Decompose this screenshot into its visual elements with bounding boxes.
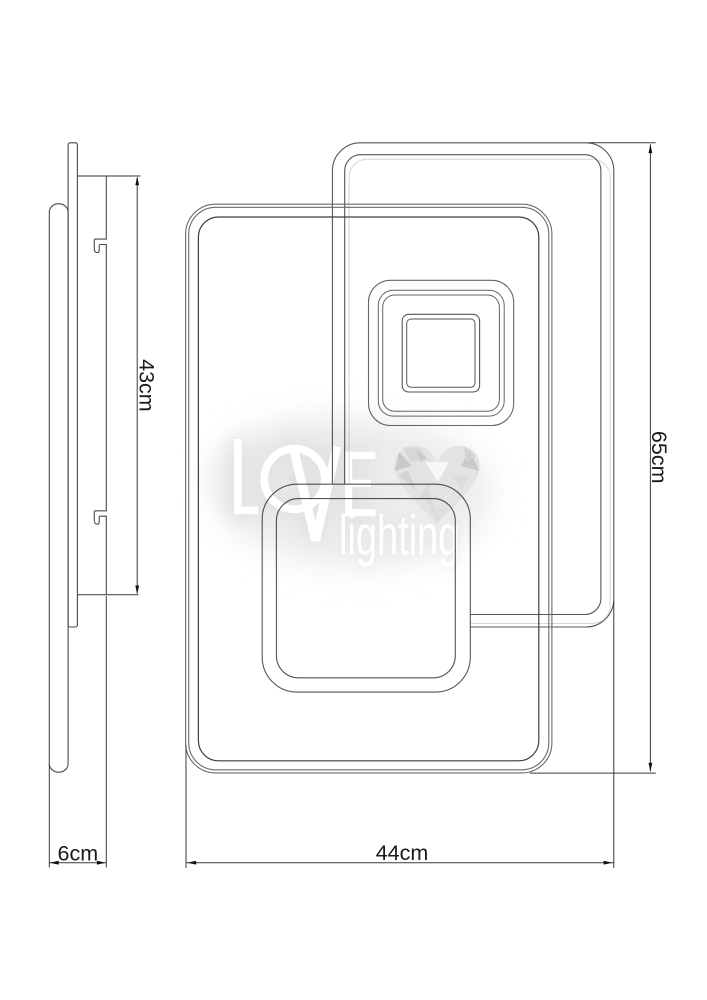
svg-text:6cm: 6cm — [57, 842, 98, 866]
svg-text:43cm: 43cm — [135, 359, 159, 412]
svg-text:44cm: 44cm — [376, 841, 429, 865]
svg-text:lighting: lighting — [339, 504, 459, 568]
svg-text:65cm: 65cm — [647, 431, 671, 484]
